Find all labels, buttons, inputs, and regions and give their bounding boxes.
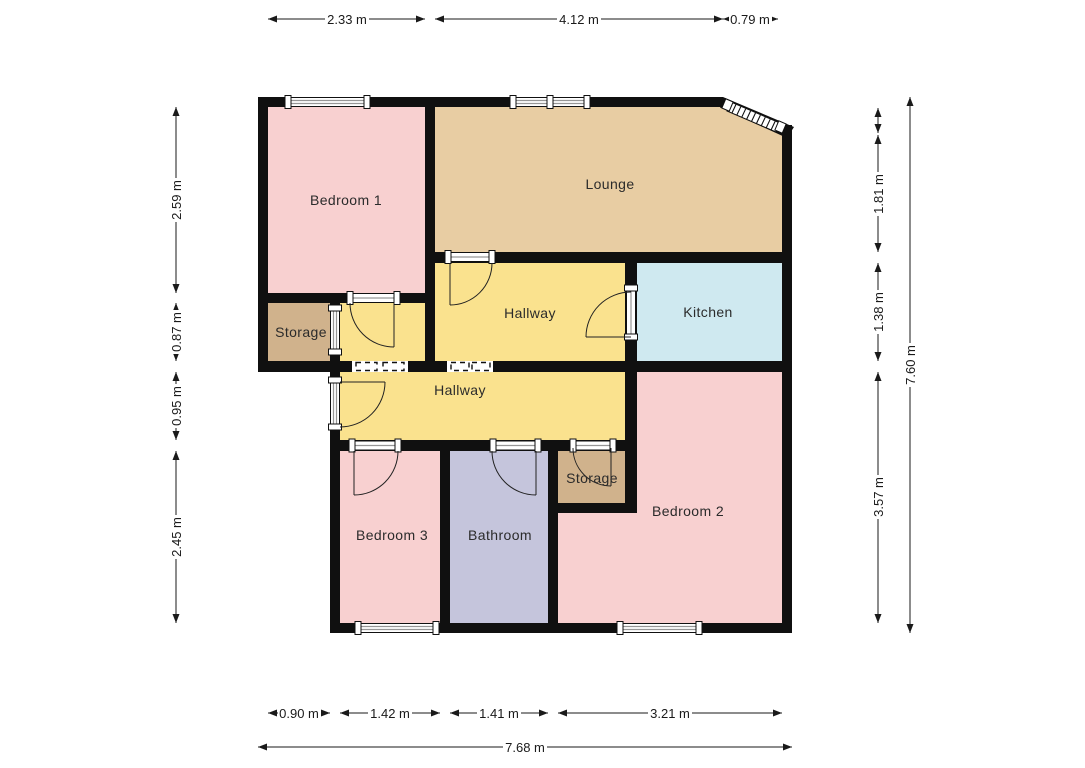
wall-bedroom1-right [425,97,435,372]
dimension-left-2: 0.95 m [169,372,184,440]
room-label-kitchen: Kitchen [683,304,733,320]
window-bedroom3-bottom [355,622,439,635]
room-label-bedroom-2: Bedroom 2 [652,503,724,519]
window-lounge-top [510,96,590,109]
room-label-lounge: Lounge [585,176,634,192]
room-label-bedroom-3: Bedroom 3 [356,527,428,543]
window-storage-vestibule [329,305,342,355]
dimension-top-0: 2.33 m [268,12,425,27]
wall-bedroom3-bathroom [440,440,450,633]
room-area-vestibule [335,298,430,367]
svg-text:7.68 m: 7.68 m [505,740,545,755]
floorplan-page: Bedroom 1 Lounge Storage Hallway Kitchen… [0,0,1085,768]
floorplan-drawing: Bedroom 1 Lounge Storage Hallway Kitchen… [0,0,1085,768]
dimension-top-2: 0.79 m [723,12,778,27]
wall-storage-lower-bottom [548,503,637,513]
dimension-bottom-2: 1.41 m [450,706,548,721]
room-hallway-lower [335,367,632,445]
svg-text:0.79 m: 0.79 m [730,12,770,27]
opening-hallway-hallway [447,361,493,372]
svg-text:1.38 m: 1.38 m [871,292,886,332]
dimension-right-0: 1.81 m [871,135,886,252]
dimension-left-3: 2.45 m [169,451,184,623]
room-label-storage-upper: Storage [275,324,327,340]
dimension-bottom-3: 3.21 m [558,706,782,721]
svg-text:2.45 m: 2.45 m [169,517,184,557]
wall-left-upper [258,97,268,372]
dimension-left-0: 2.59 m [169,107,184,293]
room-label-hallway-lower: Hallway [434,382,486,398]
svg-text:0.95 m: 0.95 m [169,386,184,426]
window-hallway-entry [329,377,342,430]
room-label-bathroom: Bathroom [468,527,532,543]
svg-text:3.21 m: 3.21 m [650,706,690,721]
svg-text:0.87 m: 0.87 m [169,312,184,352]
svg-text:1.41 m: 1.41 m [479,706,519,721]
dimension-top-1: 4.12 m [435,12,723,27]
svg-text:1.81 m: 1.81 m [871,174,886,214]
dimension-left-1: 0.87 m [169,303,184,361]
window-bedroom2-bottom [617,622,702,635]
svg-text:4.12 m: 4.12 m [559,12,599,27]
svg-text:2.33 m: 2.33 m [327,12,367,27]
dimension-right-1: 1.38 m [871,263,886,361]
room-area-hallway-lower [335,367,632,445]
svg-text:0.90 m: 0.90 m [279,706,319,721]
dimension-bottom-0: 0.90 m [268,706,330,721]
room-label-storage-lower: Storage [566,470,618,486]
dimension-right-2: 3.57 m [871,372,886,623]
wall-bathroom-bedroom2 [548,440,558,633]
room-label-hallway-upper: Hallway [504,305,556,321]
dimension-right-total: 7.60 m [903,97,918,633]
dimension-bottom-total: 7.68 m [258,740,792,755]
wall-right [782,125,792,633]
svg-text:3.57 m: 3.57 m [871,477,886,517]
opening-vestibule-hallway [352,361,408,372]
window-bedroom1-top [285,96,370,109]
dimension-bottom-1: 1.42 m [340,706,440,721]
dimension-right-mini [875,108,882,133]
svg-text:2.59 m: 2.59 m [169,180,184,220]
svg-text:1.42 m: 1.42 m [370,706,410,721]
svg-text:7.60 m: 7.60 m [903,345,918,385]
room-vestibule [335,298,430,367]
room-label-bedroom-1: Bedroom 1 [310,192,382,208]
